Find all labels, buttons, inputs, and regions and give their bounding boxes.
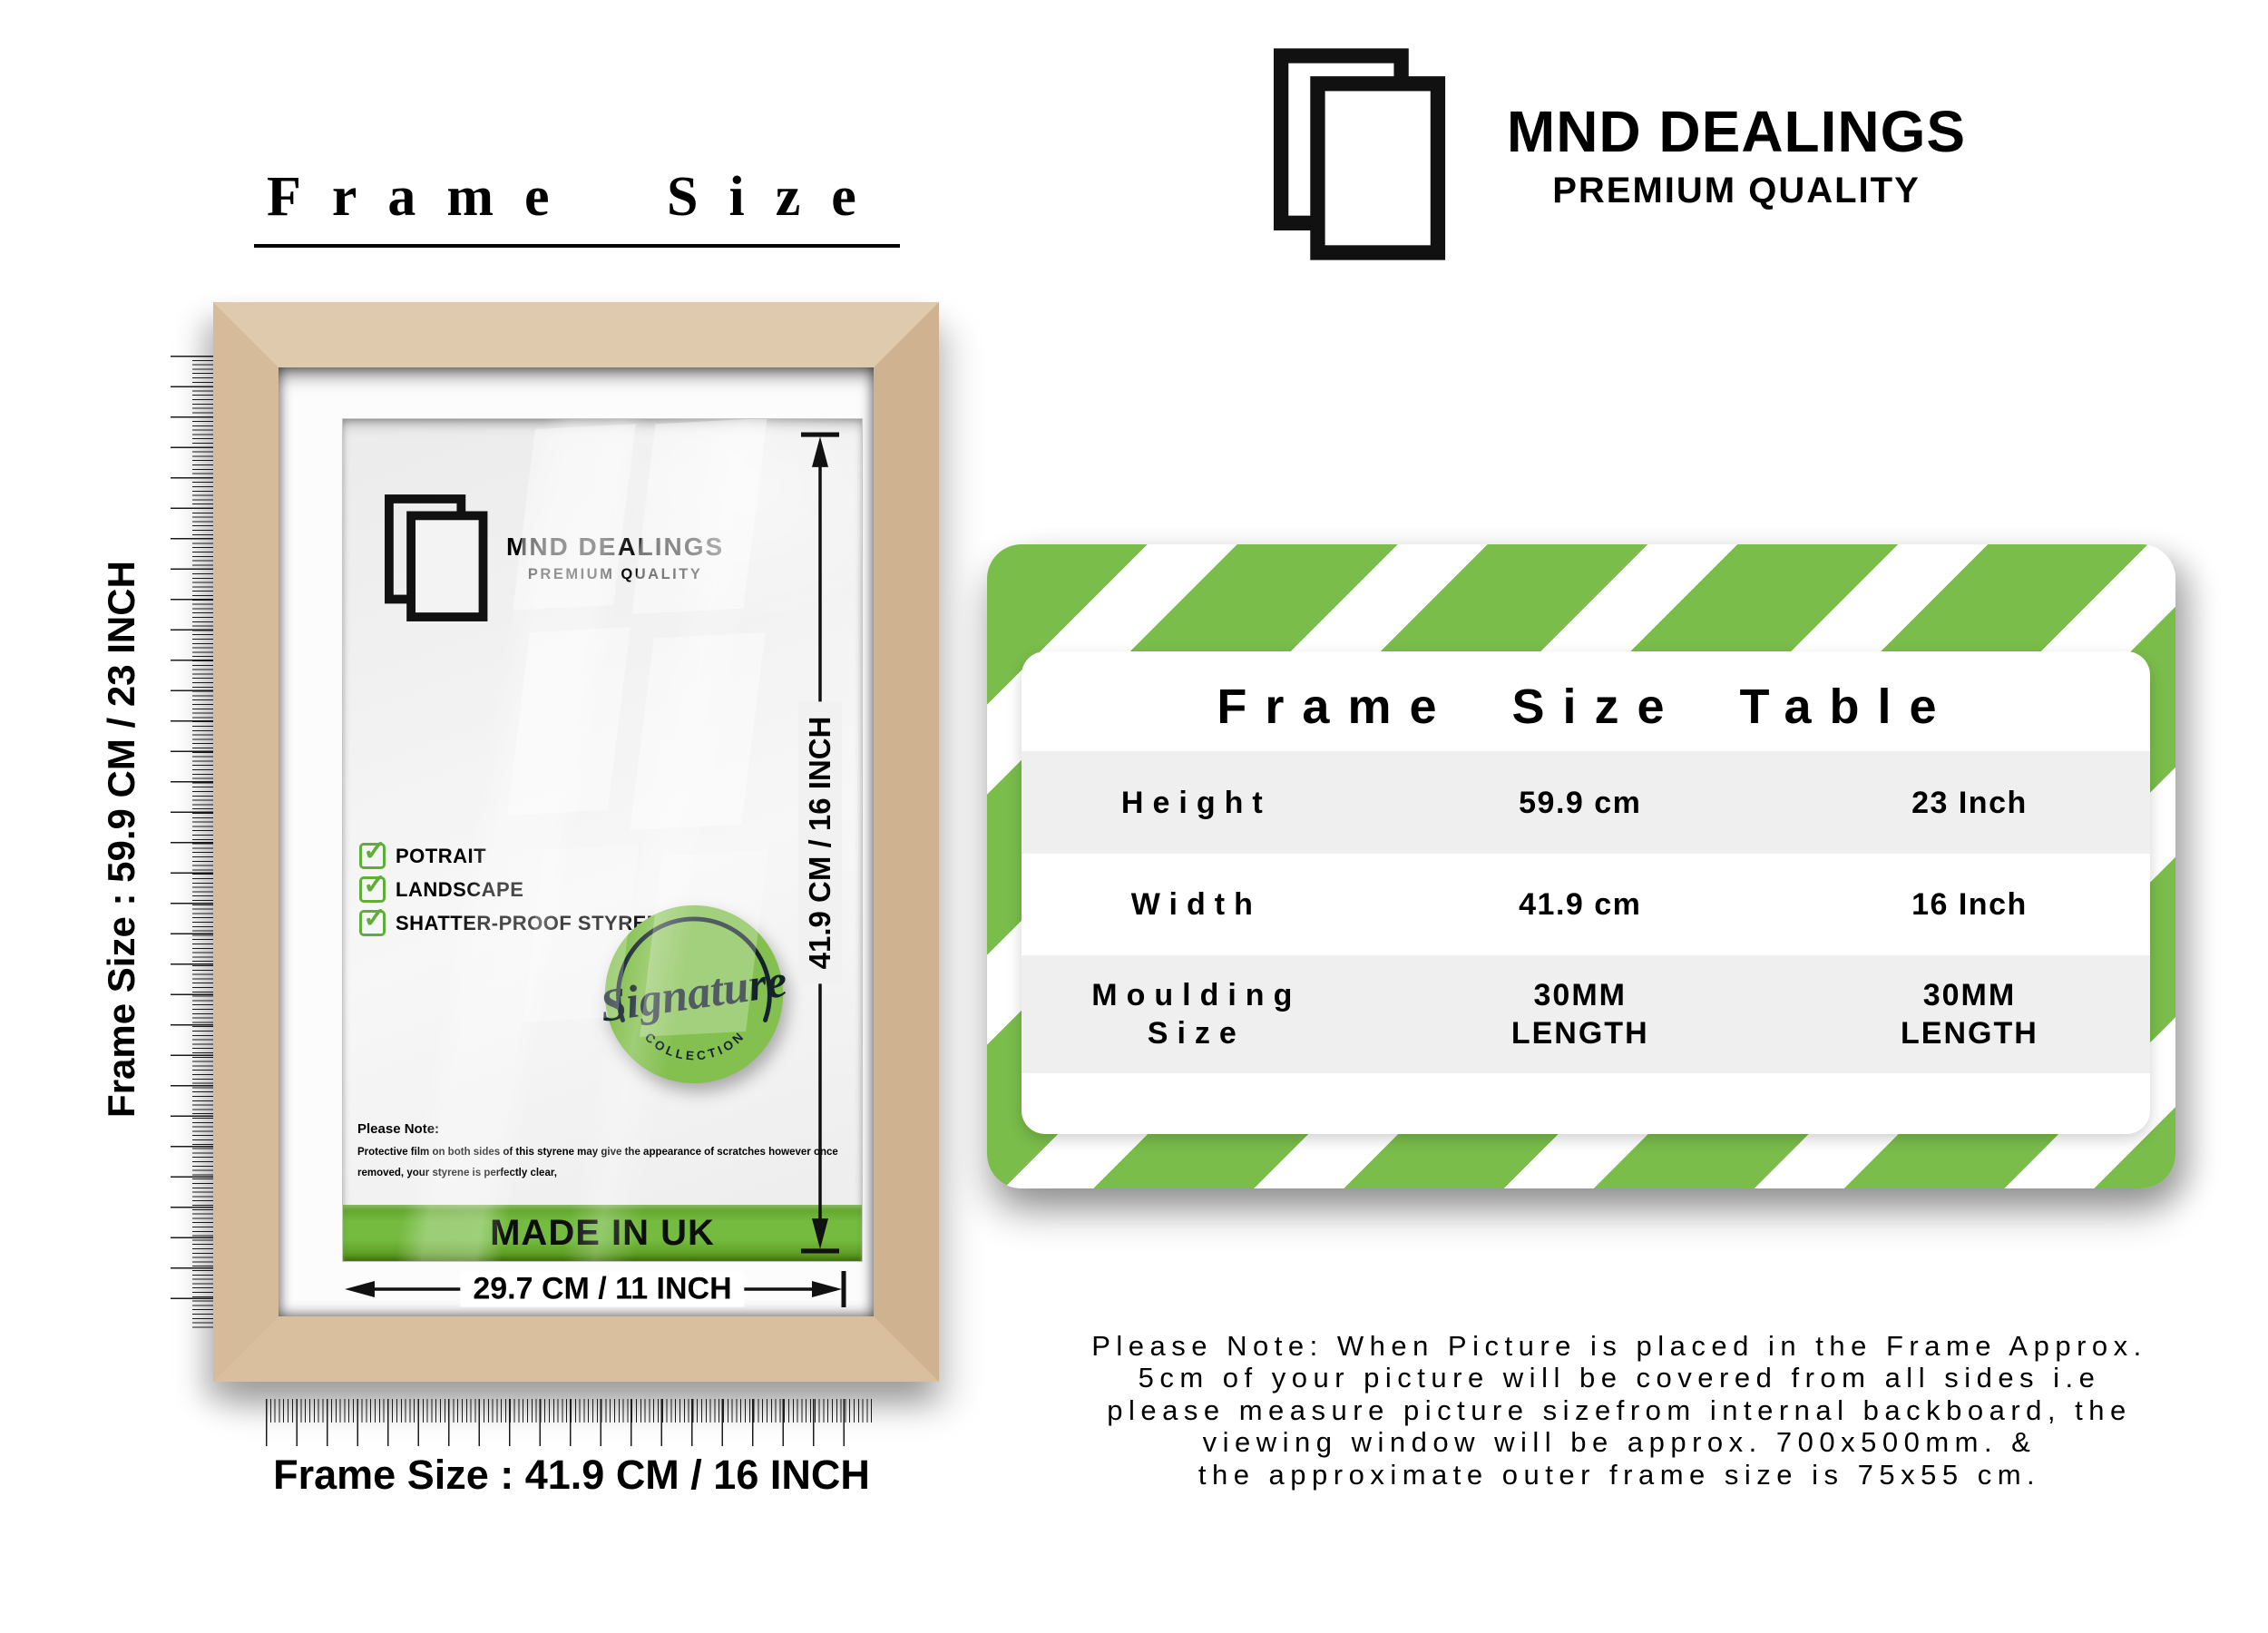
panel-logo-text: MND DEALINGS PREMIUM QUALITY: [506, 533, 724, 583]
footer-note-line: the approximate outer frame size is 75x5…: [1016, 1459, 2223, 1491]
row-metric: 30MM LENGTH: [1372, 976, 1789, 1052]
made-in-uk-banner: MADE IN UK: [343, 1205, 862, 1261]
vertical-ruler: [171, 356, 216, 1328]
row-label: Width: [1022, 885, 1372, 924]
feature-item: ✓ POTRAIT: [359, 844, 675, 868]
brand-header: MND DEALINGS PREMIUM QUALITY: [1270, 45, 2009, 263]
check-icon: ✓: [363, 904, 386, 932]
footer-note: Please Note: When Picture is placed in t…: [1016, 1330, 2223, 1491]
check-icon: ✓: [363, 836, 386, 865]
row-label: Height: [1022, 784, 1372, 822]
panel-note-line: Protective film on both sides of this st…: [357, 1142, 811, 1163]
frame-panel: MND DEALINGS PREMIUM QUALITY ✓ POTRAIT ✓…: [342, 418, 863, 1262]
horizontal-ruler: [266, 1399, 874, 1450]
checkbox-icon: ✓: [359, 876, 386, 903]
brand-tagline: PREMIUM QUALITY: [1464, 171, 2009, 211]
check-icon: ✓: [363, 870, 386, 898]
width-dimension: 29.7 CM / 11 INCH: [342, 1269, 863, 1309]
brand-text: MND DEALINGS PREMIUM QUALITY: [1464, 98, 2009, 211]
footer-note-line: 5cm of your picture will be covered from…: [1016, 1362, 2223, 1393]
frame-mat: MND DEALINGS PREMIUM QUALITY ✓ POTRAIT ✓…: [279, 367, 874, 1316]
footer-note-line: viewing window will be approx. 700x500mm…: [1016, 1426, 2223, 1458]
height-dimension-label: 41.9 CM / 16 INCH: [798, 702, 842, 984]
frame-logo-icon: [383, 472, 490, 644]
footer-note-line: Please Note: When Picture is placed in t…: [1016, 1330, 2223, 1362]
brand-name: MND DEALINGS: [1464, 98, 2009, 165]
frame-width-label: Frame Size : 41.9 CM / 16 INCH: [263, 1452, 880, 1499]
frame-logo-icon: [1270, 45, 1450, 263]
row-metric: 59.9 cm: [1372, 784, 1789, 822]
checkbox-icon: ✓: [359, 843, 386, 869]
feature-label: LANDSCAPE: [396, 878, 523, 902]
frame-height-label: Frame Size : 59.9 CM / 23 INCH: [100, 340, 154, 1338]
row-imperial: 16 Inch: [1789, 885, 2150, 924]
picture-frame: MND DEALINGS PREMIUM QUALITY ✓ POTRAIT ✓…: [213, 302, 939, 1382]
made-in-uk-label: MADE IN UK: [490, 1213, 715, 1254]
checkbox-icon: ✓: [359, 910, 386, 936]
size-table-card: Frame Size Table Height 59.9 cm 23 Inch …: [987, 544, 2175, 1188]
brand-tagline: PREMIUM QUALITY: [506, 566, 724, 583]
footer-note-line: please measure picture sizefrom internal…: [1016, 1394, 2223, 1426]
row-imperial: 23 Inch: [1789, 784, 2150, 822]
size-table-title: Frame Size Table: [1022, 679, 2150, 735]
feature-item: ✓ LANDSCAPE: [359, 877, 675, 902]
signature-badge: Signature C O L L E C T I O N: [600, 902, 788, 1090]
panel-note: Please Note: Protective film on both sid…: [357, 1121, 811, 1184]
table-row: Moulding Size 30MM LENGTH 30MM LENGTH: [1022, 955, 2150, 1073]
page-title: Frame Size: [254, 165, 900, 248]
height-dimension: 41.9 CM / 16 INCH: [800, 432, 840, 1254]
row-metric: 41.9 cm: [1372, 885, 1789, 924]
size-table-inner-card: Frame Size Table Height 59.9 cm 23 Inch …: [1022, 651, 2150, 1134]
feature-label: POTRAIT: [396, 845, 486, 868]
row-imperial: 30MM LENGTH: [1789, 976, 2150, 1052]
brand-name: MND DEALINGS: [506, 533, 724, 562]
page-title-wrap: Frame Size: [254, 165, 835, 248]
row-label: Moulding Size: [1022, 976, 1372, 1052]
width-dimension-label: 29.7 CM / 11 INCH: [460, 1272, 744, 1307]
panel-note-title: Please Note:: [357, 1121, 811, 1137]
panel-note-line: removed, your styrene is perfectly clear…: [357, 1163, 811, 1184]
page: { "title": "Frame Size", "brand": { "nam…: [0, 0, 2268, 1633]
reflection-pane: [507, 627, 631, 815]
table-row: Width 41.9 cm 16 Inch: [1022, 854, 2150, 955]
panel-logo: MND DEALINGS PREMIUM QUALITY: [383, 472, 724, 644]
ruler-major-ticks: [266, 1399, 874, 1446]
reflection-pane: [630, 632, 765, 830]
table-row: Height 59.9 cm 23 Inch: [1022, 751, 2150, 854]
